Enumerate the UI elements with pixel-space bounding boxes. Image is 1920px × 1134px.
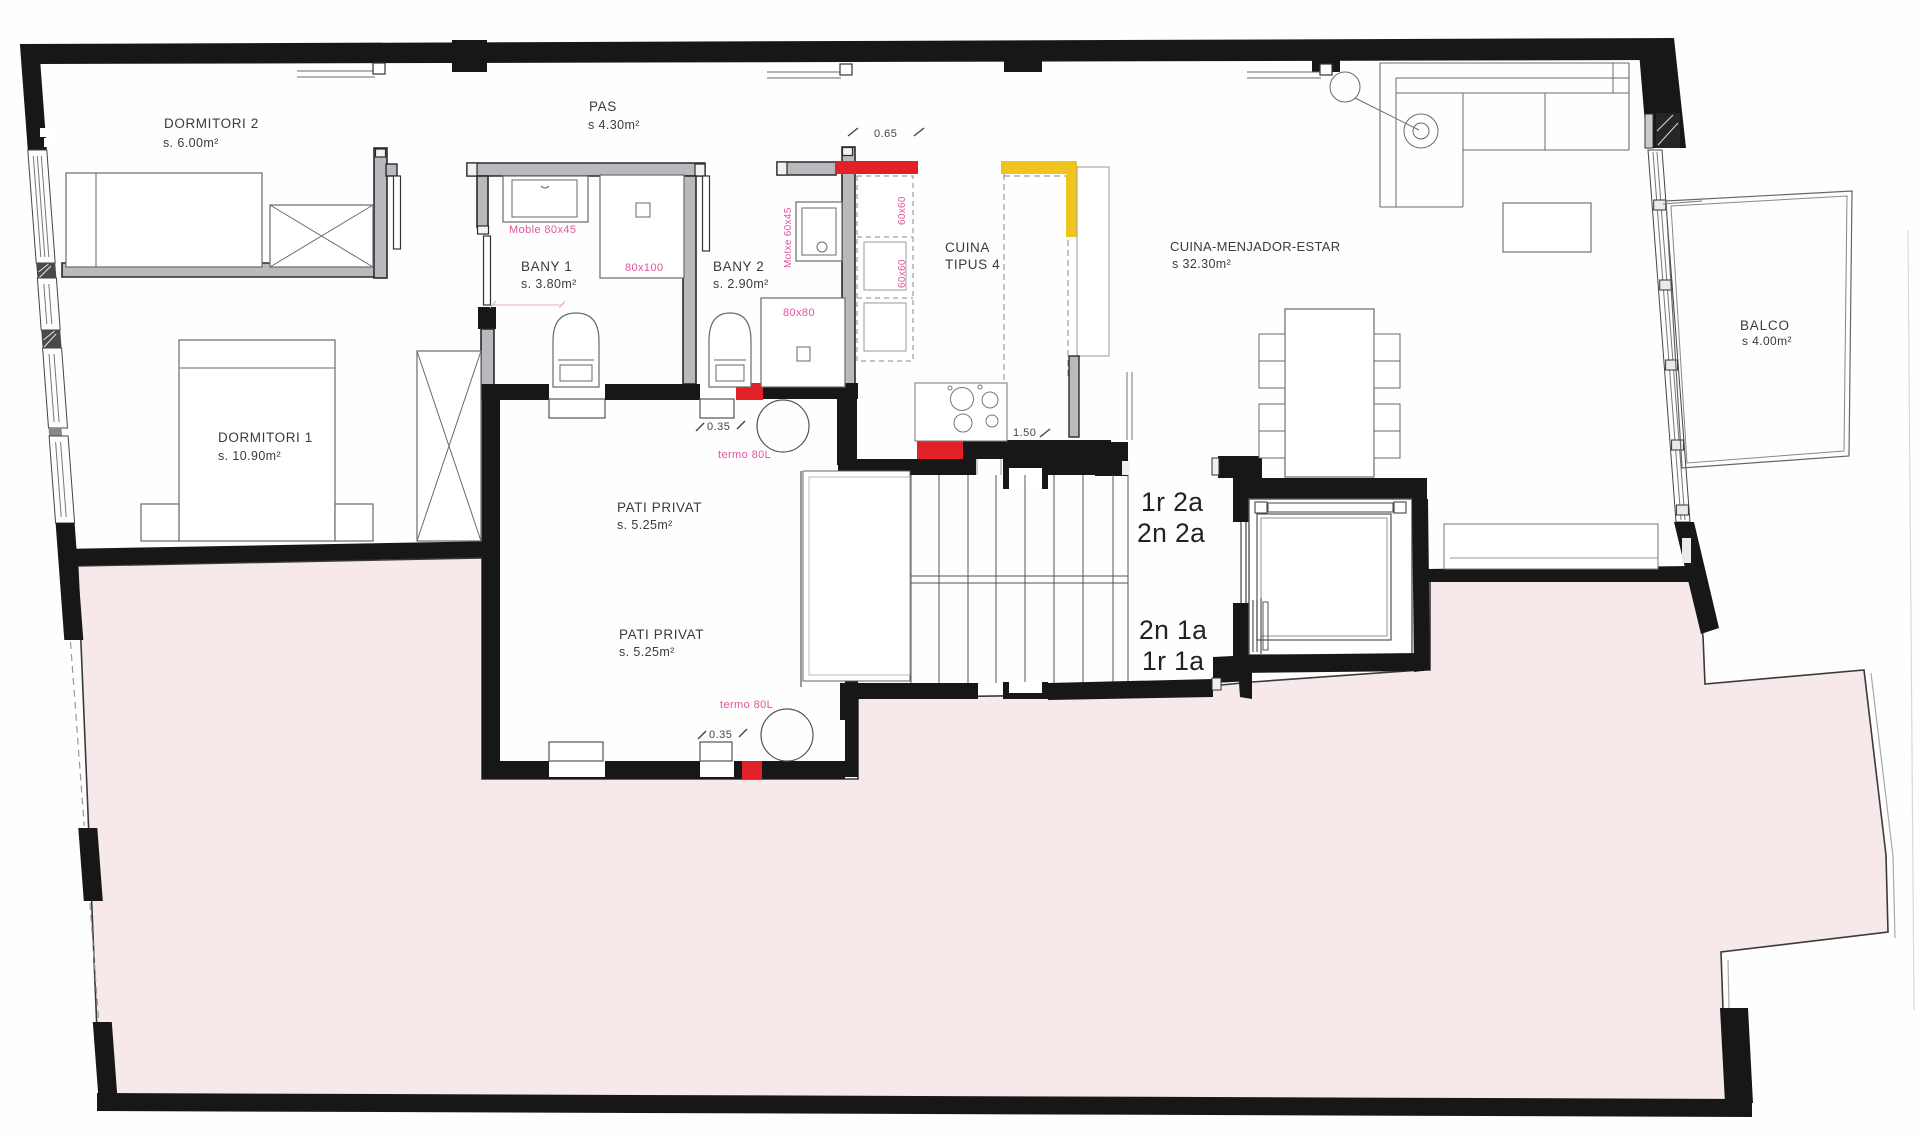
svg-text:BALCO: BALCO bbox=[1740, 318, 1790, 333]
svg-text:s. 5.25m²: s. 5.25m² bbox=[617, 518, 673, 532]
svg-text:BANY 2: BANY 2 bbox=[713, 259, 764, 274]
svg-text:80x80: 80x80 bbox=[783, 307, 815, 319]
svg-text:s 32.30m²: s 32.30m² bbox=[1172, 257, 1231, 271]
svg-text:Motxe 60x45: Motxe 60x45 bbox=[783, 207, 794, 268]
svg-text:BANY 1: BANY 1 bbox=[521, 259, 572, 274]
svg-text:DORMITORI 1: DORMITORI 1 bbox=[218, 430, 313, 445]
svg-text:0.35: 0.35 bbox=[709, 729, 732, 741]
svg-text:s. 6.00m²: s. 6.00m² bbox=[163, 136, 219, 150]
svg-text:DORMITORI 2: DORMITORI 2 bbox=[164, 116, 259, 131]
svg-text:s 4.30m²: s 4.30m² bbox=[588, 118, 640, 132]
svg-text:60x60: 60x60 bbox=[897, 259, 908, 288]
svg-text:2n 1a: 2n 1a bbox=[1139, 615, 1207, 645]
svg-text:s. 10.90m²: s. 10.90m² bbox=[218, 449, 281, 463]
svg-text:s. 3.80m²: s. 3.80m² bbox=[521, 277, 577, 291]
svg-text:PAS: PAS bbox=[589, 99, 617, 114]
svg-text:TIPUS 4: TIPUS 4 bbox=[945, 257, 1000, 272]
svg-text:s 4.00m²: s 4.00m² bbox=[1742, 334, 1792, 348]
svg-text:CUINA: CUINA bbox=[945, 240, 990, 255]
svg-text:80x100: 80x100 bbox=[625, 262, 664, 274]
svg-text:Moble 80x45: Moble 80x45 bbox=[509, 224, 576, 236]
svg-text:PATI PRIVAT: PATI PRIVAT bbox=[619, 627, 704, 642]
svg-text:1r 2a: 1r 2a bbox=[1141, 487, 1203, 517]
svg-text:termo 80L: termo 80L bbox=[720, 699, 773, 711]
svg-text:s. 5.25m²: s. 5.25m² bbox=[619, 645, 675, 659]
svg-text:0.35: 0.35 bbox=[707, 421, 730, 433]
svg-text:2n 2a: 2n 2a bbox=[1137, 518, 1205, 548]
svg-text:CUINA-MENJADOR-ESTAR: CUINA-MENJADOR-ESTAR bbox=[1170, 239, 1340, 254]
svg-text:termo 80L: termo 80L bbox=[718, 449, 771, 461]
svg-text:1r 1a: 1r 1a bbox=[1142, 646, 1204, 676]
svg-text:60x60: 60x60 bbox=[897, 196, 908, 225]
svg-text:0.65: 0.65 bbox=[874, 128, 897, 140]
svg-text:s. 2.90m²: s. 2.90m² bbox=[713, 277, 769, 291]
svg-text:PATI PRIVAT: PATI PRIVAT bbox=[617, 500, 702, 515]
svg-text:1.50: 1.50 bbox=[1013, 427, 1036, 439]
